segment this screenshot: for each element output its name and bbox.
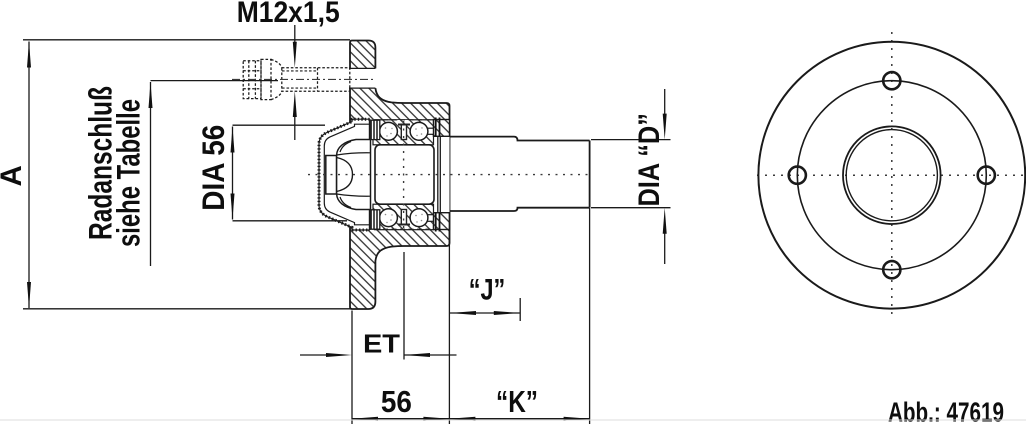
- svg-text:“K”: “K”: [496, 385, 538, 419]
- svg-text:ET: ET: [363, 328, 400, 358]
- svg-text:56: 56: [381, 385, 412, 419]
- svg-text:M12x1,5: M12x1,5: [237, 0, 340, 29]
- svg-text:DIA “D”: DIA “D”: [633, 113, 666, 207]
- svg-text:A: A: [0, 165, 28, 186]
- svg-text:Abb.: 47619: Abb.: 47619: [888, 396, 1004, 427]
- svg-text:siehe Tabelle: siehe Tabelle: [110, 99, 146, 247]
- svg-text:“J”: “J”: [469, 274, 506, 307]
- svg-text:DIA 56: DIA 56: [195, 125, 231, 211]
